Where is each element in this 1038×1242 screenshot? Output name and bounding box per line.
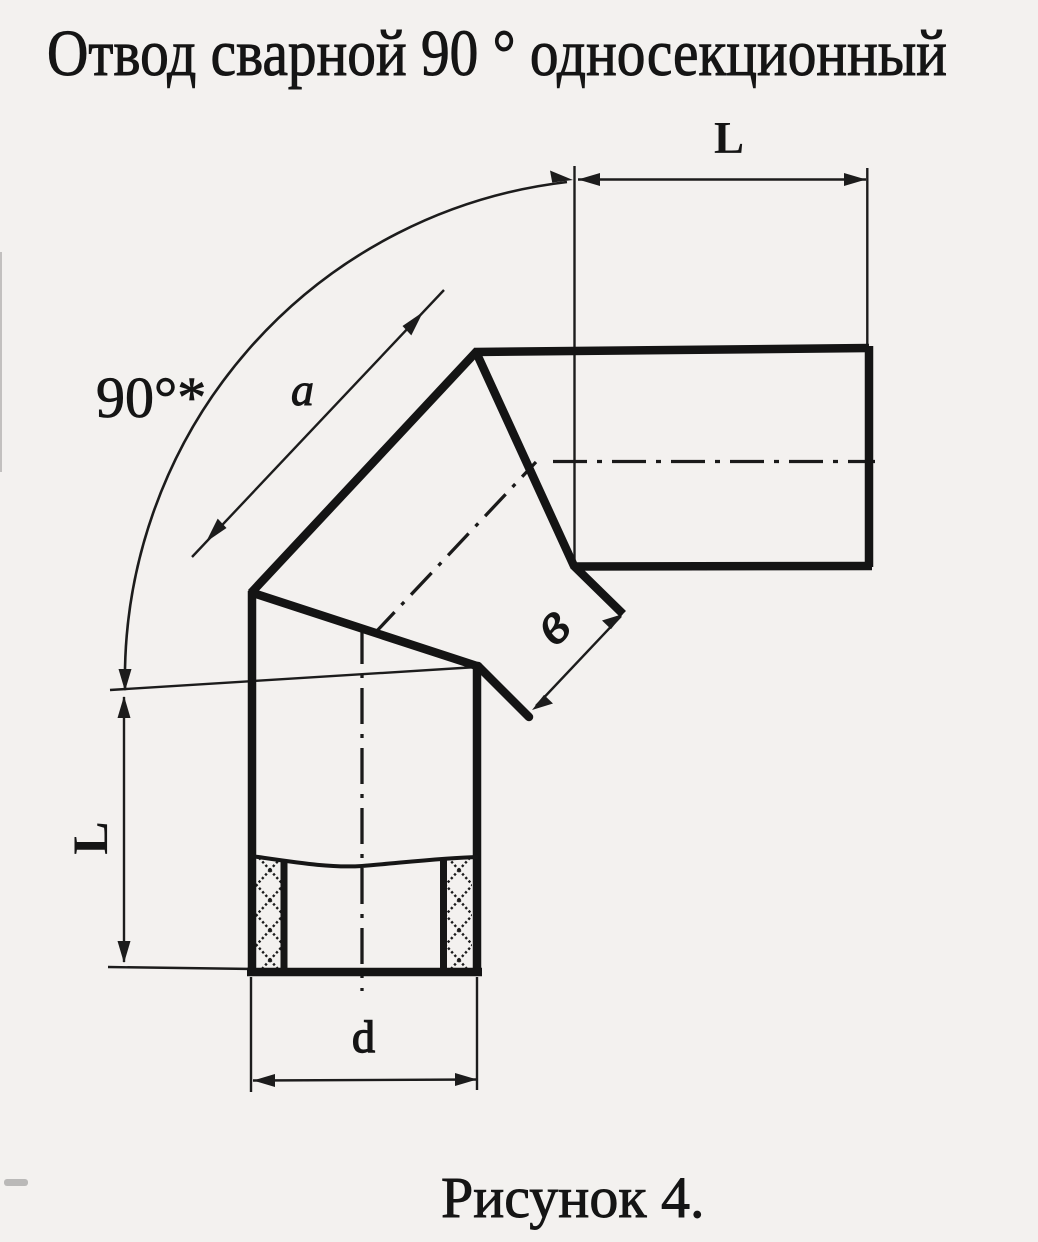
- svg-text:Рисунок 4.: Рисунок 4.: [441, 1165, 705, 1230]
- svg-text:L: L: [714, 113, 744, 163]
- svg-text:d: d: [352, 1011, 375, 1062]
- svg-text:в: в: [519, 591, 583, 657]
- svg-text:Отвод сварной 90 ° односекцион: Отвод сварной 90 ° односекционный: [47, 17, 947, 90]
- svg-text:L: L: [62, 821, 118, 854]
- svg-text:a: a: [291, 364, 314, 415]
- svg-text:90°*: 90°*: [96, 365, 206, 430]
